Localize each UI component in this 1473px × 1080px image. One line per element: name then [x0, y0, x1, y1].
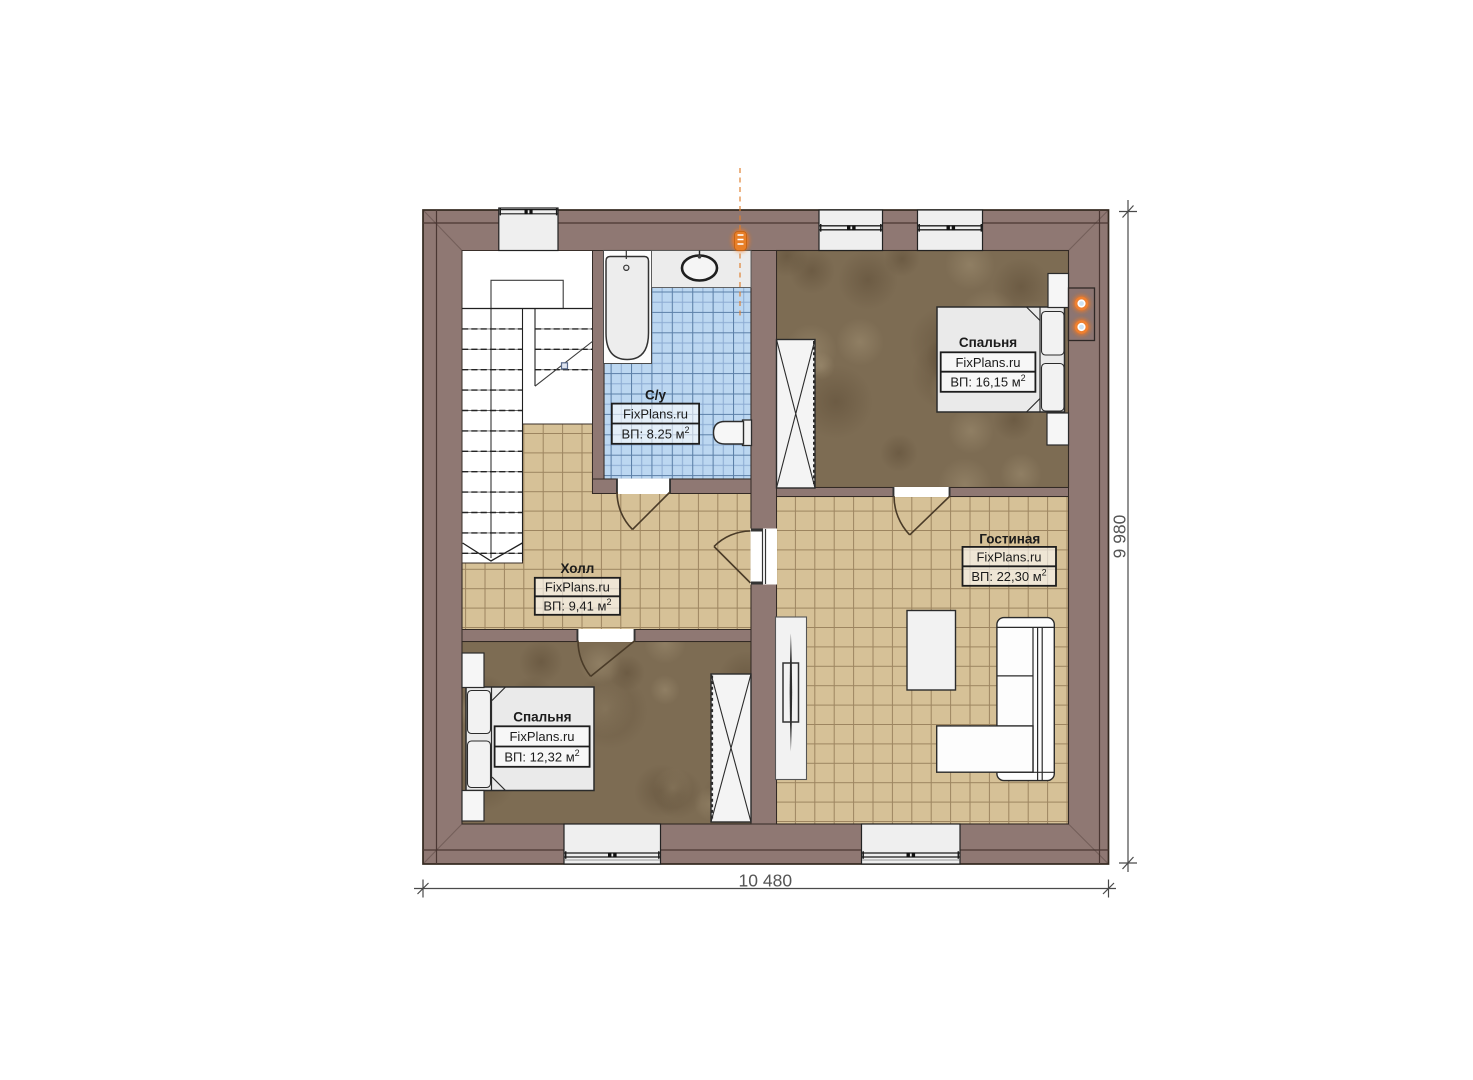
svg-text:ВП: 16,15 м2: ВП: 16,15 м2	[950, 373, 1025, 390]
svg-text:FixPlans.ru: FixPlans.ru	[623, 407, 688, 422]
svg-text:FixPlans.ru: FixPlans.ru	[976, 549, 1041, 564]
svg-text:С/у: С/у	[645, 388, 667, 403]
svg-text:10 480: 10 480	[739, 871, 793, 891]
svg-text:Спальня: Спальня	[513, 709, 571, 724]
svg-text:Холл: Холл	[560, 561, 594, 576]
svg-text:Спальня: Спальня	[959, 335, 1017, 350]
svg-text:FixPlans.ru: FixPlans.ru	[545, 580, 610, 595]
svg-text:Гостиная: Гостиная	[979, 531, 1040, 546]
svg-text:ВП: 22,30 м2: ВП: 22,30 м2	[971, 567, 1046, 584]
svg-text:FixPlans.ru: FixPlans.ru	[509, 729, 574, 744]
svg-text:ВП: 9,41 м2: ВП: 9,41 м2	[543, 597, 611, 614]
svg-text:ВП: 12,32 м2: ВП: 12,32 м2	[504, 748, 579, 765]
svg-text:FixPlans.ru: FixPlans.ru	[955, 355, 1020, 370]
svg-text:ВП: 8.25 м2: ВП: 8.25 м2	[621, 425, 689, 442]
svg-text:9 980: 9 980	[1110, 514, 1130, 558]
